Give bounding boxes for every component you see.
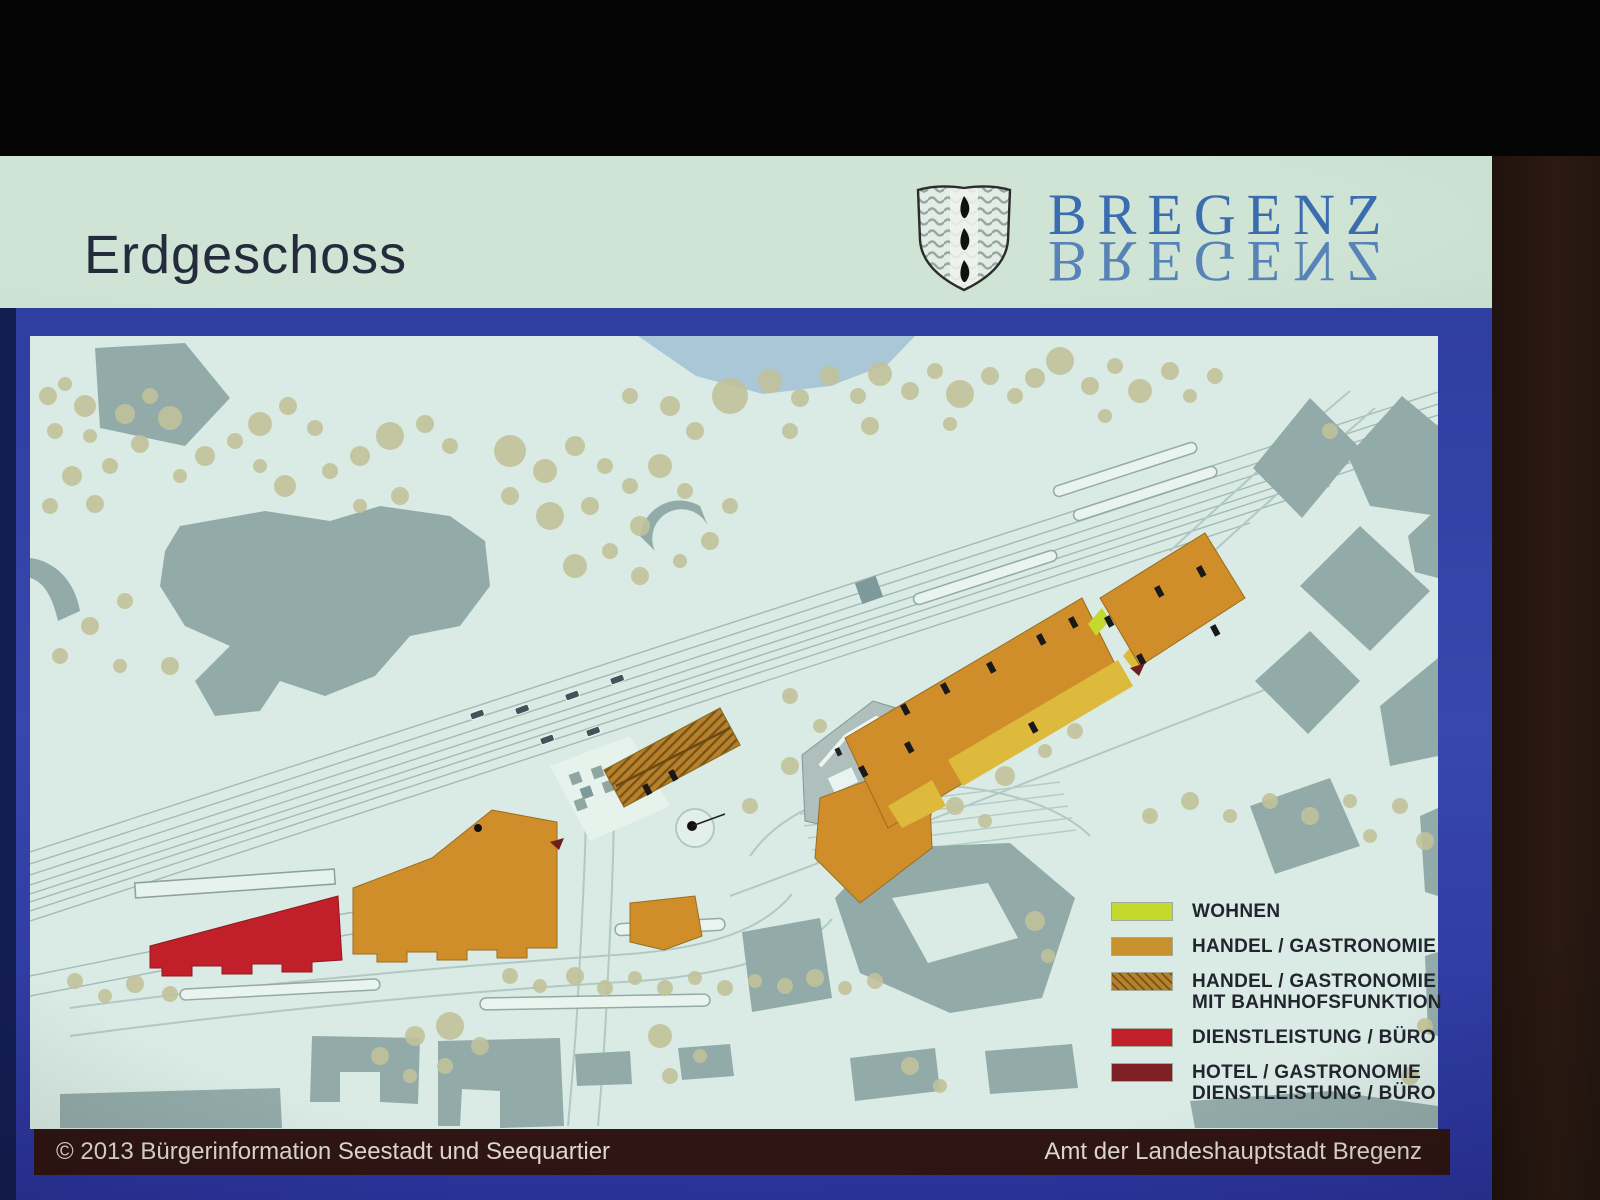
legend-label: HOTEL / GASTRONOMIEDIENSTLEISTUNG / BÜRO	[1192, 1062, 1436, 1104]
legend-swatch	[1112, 1029, 1172, 1046]
legend-item: HOTEL / GASTRONOMIEDIENSTLEISTUNG / BÜRO	[1112, 1062, 1452, 1104]
photo-of-projected-slide: Erdgeschoss	[0, 0, 1600, 1200]
legend-item: HANDEL / GASTRONOMIEMIT BAHNHOFSFUNKTION	[1112, 971, 1452, 1013]
legend-swatch	[1112, 938, 1172, 955]
legend: WOHNENHANDEL / GASTRONOMIEHANDEL / GASTR…	[1112, 901, 1452, 1118]
slide-left-dark-edge	[0, 156, 16, 1200]
presentation-slide: Erdgeschoss	[0, 156, 1492, 1200]
bregenz-wordmark: BREGENZ BREGENZ	[1048, 184, 1392, 292]
bregenz-wordmark-reflection: BREGENZ	[1048, 230, 1392, 292]
legend-item: DIENSTLEISTUNG / BÜRO	[1112, 1027, 1452, 1048]
legend-label: HANDEL / GASTRONOMIEMIT BAHNHOFSFUNKTION	[1192, 971, 1442, 1013]
bregenz-coat-of-arms-icon	[912, 182, 1016, 294]
legend-swatch	[1112, 973, 1172, 990]
page-title: Erdgeschoss	[84, 224, 407, 286]
footer-credit: Amt der Landeshauptstadt Bregenz	[1044, 1138, 1422, 1166]
footer-bar: © 2013 Bürgerinformation Seestadt und Se…	[34, 1129, 1450, 1175]
slide-header: Erdgeschoss	[0, 156, 1492, 308]
legend-item: WOHNEN	[1112, 901, 1452, 922]
footer-copyright: © 2013 Bürgerinformation Seestadt und Se…	[56, 1138, 610, 1166]
legend-label: DIENSTLEISTUNG / BÜRO	[1192, 1027, 1436, 1048]
legend-swatch	[1112, 1064, 1172, 1081]
legend-item: HANDEL / GASTRONOMIE	[1112, 936, 1452, 957]
photo-wall-background	[1492, 156, 1600, 1200]
legend-label: WOHNEN	[1192, 901, 1280, 922]
legend-label: HANDEL / GASTRONOMIE	[1192, 936, 1436, 957]
legend-swatch	[1112, 903, 1172, 920]
